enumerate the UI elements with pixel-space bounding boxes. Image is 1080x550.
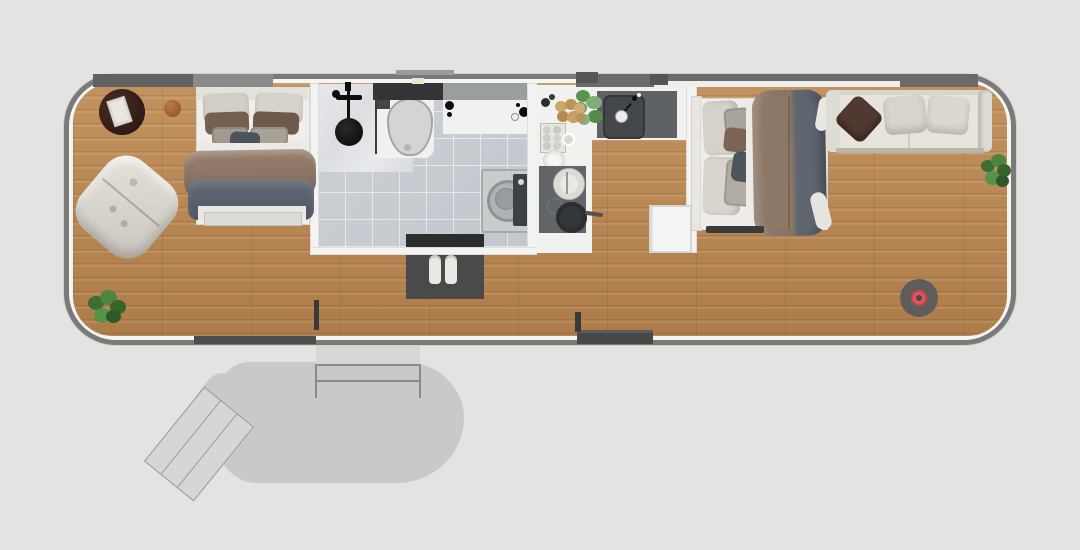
railing — [315, 362, 421, 398]
slipper — [445, 255, 457, 284]
grinder-dot — [541, 98, 550, 107]
window-bottom-right — [577, 330, 653, 344]
egg — [553, 142, 561, 150]
leaf — [586, 96, 602, 109]
cooktop — [539, 166, 586, 233]
kitchen-sink-block — [597, 91, 677, 138]
side-cabinet — [649, 205, 692, 253]
window-top-left — [93, 74, 273, 87]
faucet-dot — [637, 93, 641, 97]
sofa-front-shadow — [836, 148, 984, 153]
shower-fixture — [330, 80, 366, 148]
window-sill — [654, 81, 900, 87]
bed-right — [690, 88, 832, 236]
bed-left — [183, 85, 317, 227]
vanity-tab — [375, 100, 390, 109]
egg — [553, 126, 561, 134]
pepper-grinder — [541, 94, 557, 110]
grinder-dot — [549, 94, 555, 100]
leaf — [996, 175, 1009, 187]
sofa-pillow-cream — [925, 94, 970, 136]
tap-dot — [447, 112, 452, 117]
egg — [543, 134, 551, 142]
leaf — [106, 310, 121, 323]
kettle-handle — [566, 172, 568, 194]
door-stub-left — [314, 300, 319, 330]
wall-mark — [650, 74, 668, 85]
shower-knob — [332, 90, 340, 98]
door-stub-right — [575, 312, 581, 332]
tap-dot — [516, 103, 520, 107]
shower-head — [335, 118, 363, 146]
window-top-right — [576, 74, 978, 87]
railing-post — [315, 364, 317, 398]
potato — [576, 113, 586, 123]
washer-knob — [518, 179, 524, 185]
frying-pan — [556, 202, 587, 233]
shower-crossbar — [336, 95, 362, 100]
plant-left — [86, 288, 128, 326]
faucet-base — [615, 110, 628, 123]
robot-vacuum — [900, 279, 938, 317]
tap-dot — [445, 101, 454, 110]
tap-ring — [511, 113, 519, 121]
sofa — [826, 90, 992, 156]
leaf — [588, 110, 603, 123]
foot-bench — [204, 212, 302, 226]
railing-bar — [315, 380, 421, 382]
kettle — [553, 168, 585, 200]
vacuum-center — [916, 295, 922, 301]
shower-glass — [375, 96, 377, 154]
sofa-pillow-cream — [882, 94, 927, 136]
wall-mark-gray — [396, 70, 454, 75]
shower-stem — [345, 82, 351, 91]
toilet-button — [404, 144, 411, 151]
floor-plan-scene — [0, 0, 1080, 550]
egg — [543, 142, 551, 150]
bathroom-counter-band — [443, 83, 529, 100]
egg — [553, 134, 561, 142]
window-segment — [193, 74, 273, 87]
egg — [543, 126, 551, 134]
small-ring — [562, 133, 575, 146]
duvet-fold — [788, 96, 790, 230]
slippers — [429, 255, 461, 287]
slipper — [429, 255, 441, 284]
plant-right — [979, 154, 1015, 190]
railing-post — [419, 364, 421, 398]
vanity-counter — [373, 83, 445, 100]
faucet-spout — [632, 96, 637, 101]
wall-mark-yellow — [412, 78, 424, 84]
bathroom-wall-bottom — [310, 247, 537, 255]
foot-strip — [706, 226, 764, 233]
sofa-arm — [978, 90, 992, 152]
wall-mark — [576, 72, 598, 83]
railing-bar — [315, 364, 421, 366]
window-bottom-left — [194, 336, 316, 344]
wooden-stool — [164, 100, 181, 117]
